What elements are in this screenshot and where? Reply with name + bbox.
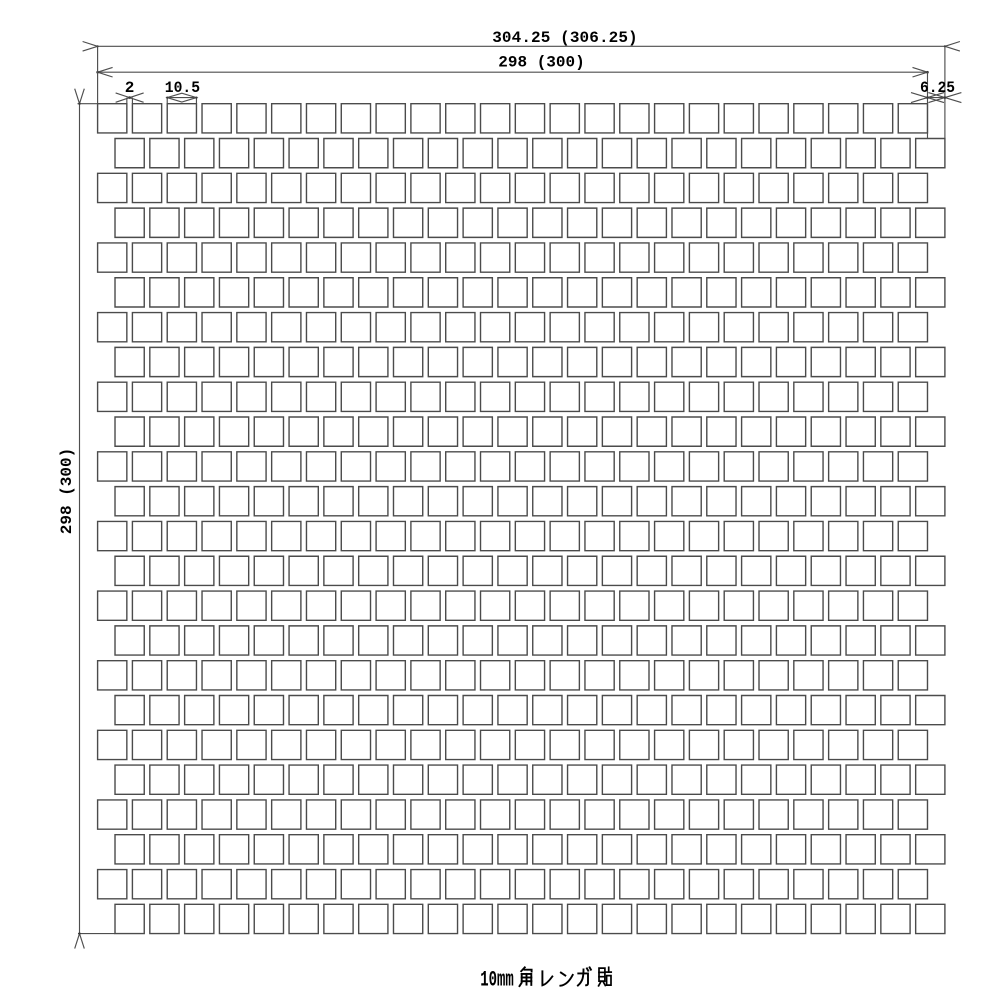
svg-text:298 (300): 298 (300) [498,53,584,71]
svg-text:10mm: 10mm [480,967,514,992]
svg-text:304.25 (306.25): 304.25 (306.25) [492,29,638,47]
svg-text:2: 2 [125,79,135,97]
svg-text:10.5: 10.5 [165,79,200,97]
svg-text:6.25: 6.25 [920,79,955,97]
svg-text:298 (300): 298 (300) [58,448,76,534]
